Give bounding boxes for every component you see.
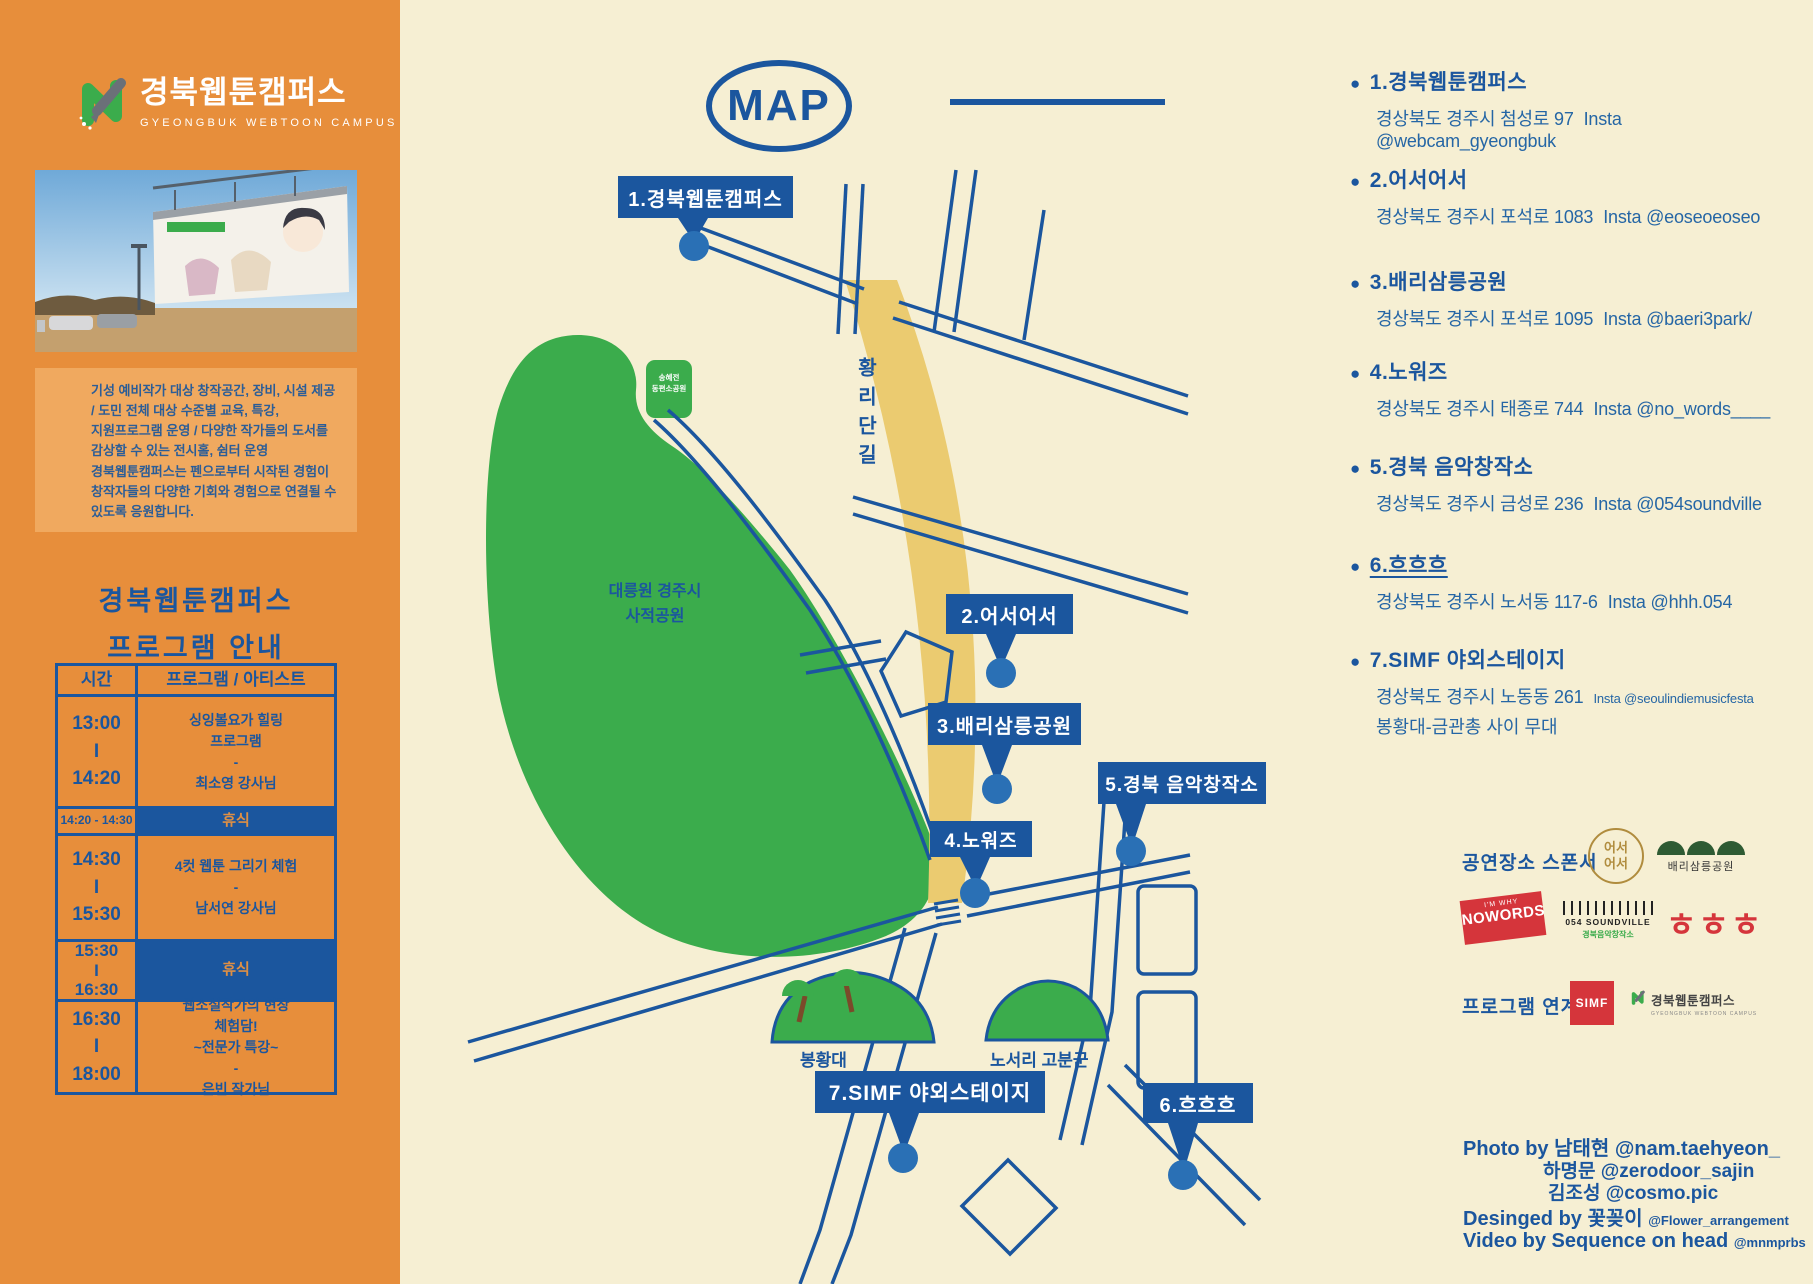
brand: 경북웹툰캠퍼스 GYEONGBUK WEBTOON CAMPUS: [76, 76, 398, 130]
location-entry-6: ●6.흐흐흐 경상북도 경주시 노서동 117-6Insta @hhh.054: [1350, 549, 1780, 614]
hhh-logo: ㅎㅎㅎ: [1666, 898, 1763, 946]
location-insta: Insta @hhh.054: [1608, 592, 1733, 612]
map-marker-label-3: 3.배리삼릉공원: [928, 703, 1081, 745]
marker-dot-2: [986, 658, 1016, 688]
col-header-program: 프로그램 / 아티스트: [138, 666, 334, 694]
brand-subtitle: GYEONGBUK WEBTOON CAMPUS: [140, 117, 398, 129]
soundville-logo: 054 SOUNDVILLE 경북음악창작소: [1563, 901, 1653, 940]
intro-text: 기성 예비작가 대상 창작공간, 장비, 시설 제공 / 도민 전체 대상 수준…: [35, 368, 357, 532]
marker-dot-1: [679, 231, 709, 261]
location-address: 경상북도 경주시 포석로 1095: [1376, 309, 1593, 329]
location-note: 봉황대-금관총 사이 무대: [1376, 713, 1780, 739]
location-insta: Insta @eoseoeoseo: [1603, 207, 1760, 227]
venue-sponsor-label: 공연장소 스폰서: [1462, 848, 1598, 875]
bullet-icon: ●: [1350, 172, 1361, 191]
baeri-park-logo: 배리삼릉공원: [1655, 841, 1747, 874]
location-entry-7: ●7.SIMF 야외스테이지 경상북도 경주시 노동동 261Insta @se…: [1350, 644, 1780, 739]
table-row: 16:30 I 18:00 웹소설작가의 현장 체험담! ~전문가 특강~ - …: [58, 1002, 334, 1092]
table-row-break: 15:30 I 16:30 휴식: [58, 942, 334, 1002]
nowords-logo: I'M WHY NOWORDS: [1460, 891, 1547, 945]
location-name: 7.SIMF 야외스테이지: [1370, 649, 1566, 672]
crosswalk: [934, 900, 961, 925]
campus-logo-icon: [1630, 990, 1646, 1006]
simf-logo: SIMF: [1570, 981, 1614, 1025]
mound-bonghwangdae: [772, 969, 934, 1042]
program-title: 경북웹툰캠퍼스 프로그램 안내: [55, 578, 337, 673]
col-header-time: 시간: [58, 666, 138, 694]
park-sign-label: 송혜전 동편소공원: [646, 372, 692, 395]
sidebar: 경북웹툰캠퍼스 GYEONGBUK WEBTOON CAMPUS: [0, 0, 400, 1284]
marker-dot-4: [960, 878, 990, 908]
campus-mini-logo: 경북웹툰캠퍼스 GYEONGBUK WEBTOON CAMPUS: [1630, 990, 1757, 1017]
campus-photo: [35, 170, 357, 352]
location-name: 2.어서어서: [1370, 169, 1468, 192]
table-row: 14:30 I 15:30 4컷 웹툰 그리기 체험 - 남서연 강사님: [58, 836, 334, 942]
credit-design: Desinged by 꽃꽂이 @Flower_arrangement: [1463, 1202, 1789, 1231]
location-address: 경상북도 경주시 노서동 117-6: [1376, 592, 1598, 612]
bullet-icon: ●: [1350, 74, 1361, 93]
map-marker-label-2: 2.어서어서: [946, 594, 1073, 634]
location-address: 경상북도 경주시 노동동 261: [1376, 687, 1583, 707]
location-name: 4.노워즈: [1370, 361, 1448, 384]
location-entry-3: ●3.배리삼릉공원 경상북도 경주시 포석로 1095Insta @baeri3…: [1350, 266, 1780, 331]
location-address: 경상북도 경주시 첨성로 97: [1376, 109, 1574, 129]
webtoon-campus-leaflet: 경북웹툰캠퍼스 GYEONGBUK WEBTOON CAMPUS: [0, 0, 1813, 1284]
mound-label-bonghwangdae: 봉황대: [800, 1046, 847, 1071]
marker-dot-5: [1116, 836, 1146, 866]
divider-line: [950, 99, 1165, 105]
table-row: 13:00 I 14:20 싱잉볼요가 힐링 프로그램 - 최소영 강사님: [58, 697, 334, 809]
location-insta: Insta @054soundville: [1593, 494, 1761, 514]
location-name: 5.경북 음악창작소: [1370, 456, 1534, 479]
location-name: 3.배리삼릉공원: [1370, 271, 1507, 294]
program-link-label: 프로그램 연계: [1462, 992, 1579, 1019]
mound-label-noseori: 노서리 고분군: [990, 1046, 1089, 1071]
location-name: 6.흐흐흐: [1370, 554, 1448, 577]
eoseo-logo: 어서 어서: [1588, 828, 1644, 884]
campus-logo-icon: [76, 76, 130, 130]
video-handle: @mnmprbs: [1734, 1235, 1806, 1250]
road-label-hwangridangil: 황리단길: [851, 357, 880, 473]
location-entry-4: ●4.노워즈 경상북도 경주시 태종로 744Insta @no_words__…: [1350, 356, 1780, 421]
credit-photo-3: 김조성 @cosmo.pic: [1548, 1178, 1718, 1205]
map-marker-label-7: 7.SIMF 야외스테이지: [815, 1071, 1045, 1113]
park-label: 대릉원 경주시 사적공원: [580, 580, 730, 630]
three-mounds-icon: [1655, 841, 1747, 855]
marker-dot-3: [982, 774, 1012, 804]
location-address: 경상북도 경주시 금성로 236: [1376, 494, 1583, 514]
table-row-break: 14:20 - 14:30 휴식: [58, 809, 334, 836]
table-header-row: 시간 프로그램 / 아티스트: [58, 666, 334, 697]
map-marker-label-4: 4.노워즈: [930, 821, 1032, 857]
bullet-icon: ●: [1350, 557, 1361, 576]
map-title: MAP: [706, 60, 852, 152]
location-insta: Insta @no_words____: [1593, 399, 1770, 419]
program-schedule-table: 시간 프로그램 / 아티스트 13:00 I 14:20 싱잉볼요가 힐링 프로…: [55, 663, 337, 1095]
ruler-ticks-icon: [1563, 901, 1653, 915]
map-marker-label-6: 6.흐흐흐: [1143, 1083, 1253, 1123]
bullet-icon: ●: [1350, 459, 1361, 478]
brand-title: 경북웹툰캠퍼스: [140, 76, 398, 110]
credit-video: Video by Sequence on head @mnmprbs: [1463, 1230, 1806, 1253]
location-entry-5: ●5.경북 음악창작소 경상북도 경주시 금성로 236Insta @054so…: [1350, 451, 1780, 516]
location-insta: Insta @baeri3park/: [1603, 309, 1752, 329]
marker-dot-6: [1168, 1160, 1198, 1190]
marker-dot-7: [888, 1143, 918, 1173]
location-address: 경상북도 경주시 태종로 744: [1376, 399, 1583, 419]
bullet-icon: ●: [1350, 274, 1361, 293]
bullet-icon: ●: [1350, 652, 1361, 671]
location-entry-2: ●2.어서어서 경상북도 경주시 포석로 1083Insta @eoseoeos…: [1350, 164, 1780, 229]
location-entry-1: ●1.경북웹툰캠퍼스 경상북도 경주시 첨성로 97Insta @webcam_…: [1350, 66, 1780, 152]
bullet-icon: ●: [1350, 364, 1361, 383]
location-address: 경상북도 경주시 포석로 1083: [1376, 207, 1593, 227]
map-marker-label-5: 5.경북 음악창작소: [1098, 762, 1266, 804]
location-name: 1.경북웹툰캠퍼스: [1370, 71, 1527, 94]
map-marker-label-1: 1.경북웹툰캠퍼스: [618, 176, 793, 218]
design-handle: @Flower_arrangement: [1648, 1213, 1789, 1228]
location-insta: Insta @seoulindiemusicfesta: [1593, 691, 1753, 706]
